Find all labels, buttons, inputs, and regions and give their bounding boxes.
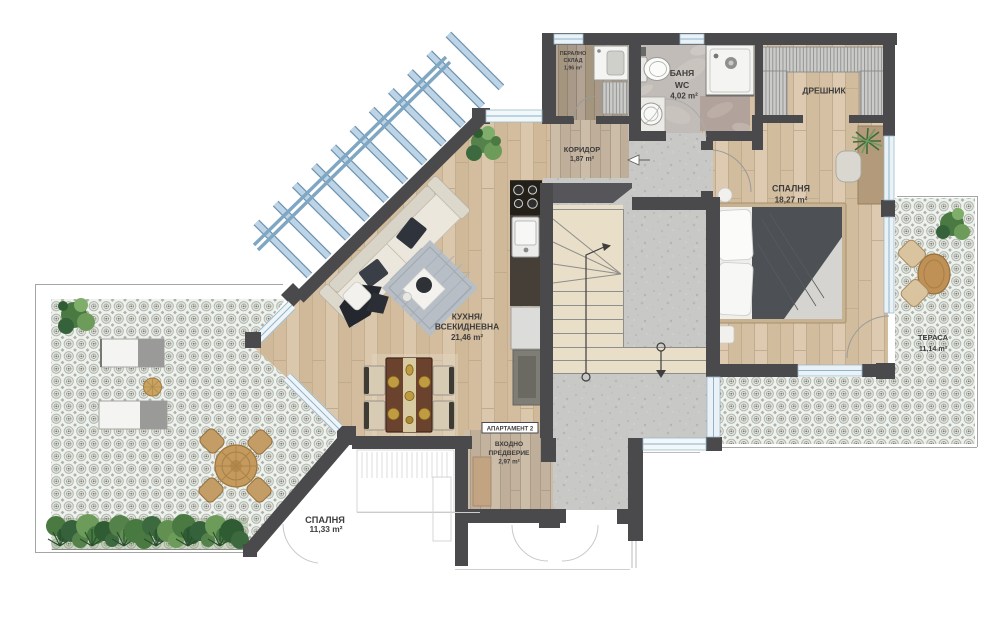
svg-text:18,27 m²: 18,27 m² bbox=[775, 196, 808, 205]
svg-text:СКЛАД: СКЛАД bbox=[564, 58, 583, 64]
svg-text:11,14 m²: 11,14 m² bbox=[919, 344, 948, 353]
svg-text:4,02 m²: 4,02 m² bbox=[670, 92, 698, 101]
svg-text:БАНЯ: БАНЯ bbox=[670, 68, 694, 78]
svg-text:КОРИДОР: КОРИДОР bbox=[564, 145, 601, 154]
svg-text:ДРЕШНИК: ДРЕШНИК bbox=[802, 86, 846, 96]
svg-text:КУХНЯ/: КУХНЯ/ bbox=[452, 312, 483, 322]
svg-text:ПРЕДВЕРИЕ: ПРЕДВЕРИЕ bbox=[489, 450, 531, 457]
svg-text:1,96 m²: 1,96 m² bbox=[564, 66, 582, 72]
svg-text:1,87 m²: 1,87 m² bbox=[570, 156, 595, 163]
svg-text:АПАРТАМЕНТ 2: АПАРТАМЕНТ 2 bbox=[487, 427, 534, 433]
svg-text:21,46 m²: 21,46 m² bbox=[451, 333, 483, 342]
svg-text:ВХОДНО: ВХОДНО bbox=[495, 441, 523, 448]
svg-text:ПЕРАЛНО: ПЕРАЛНО bbox=[560, 51, 586, 57]
svg-text:11,33 m²: 11,33 m² bbox=[309, 524, 342, 534]
svg-text:СПАЛНЯ: СПАЛНЯ bbox=[772, 184, 810, 194]
svg-text:WC: WC bbox=[675, 80, 689, 90]
svg-text:2,97 m²: 2,97 m² bbox=[498, 459, 519, 466]
svg-text:ТЕРАСА: ТЕРАСА bbox=[918, 333, 949, 342]
svg-text:ВСЕКИДНЕВНА: ВСЕКИДНЕВНА bbox=[435, 322, 499, 332]
